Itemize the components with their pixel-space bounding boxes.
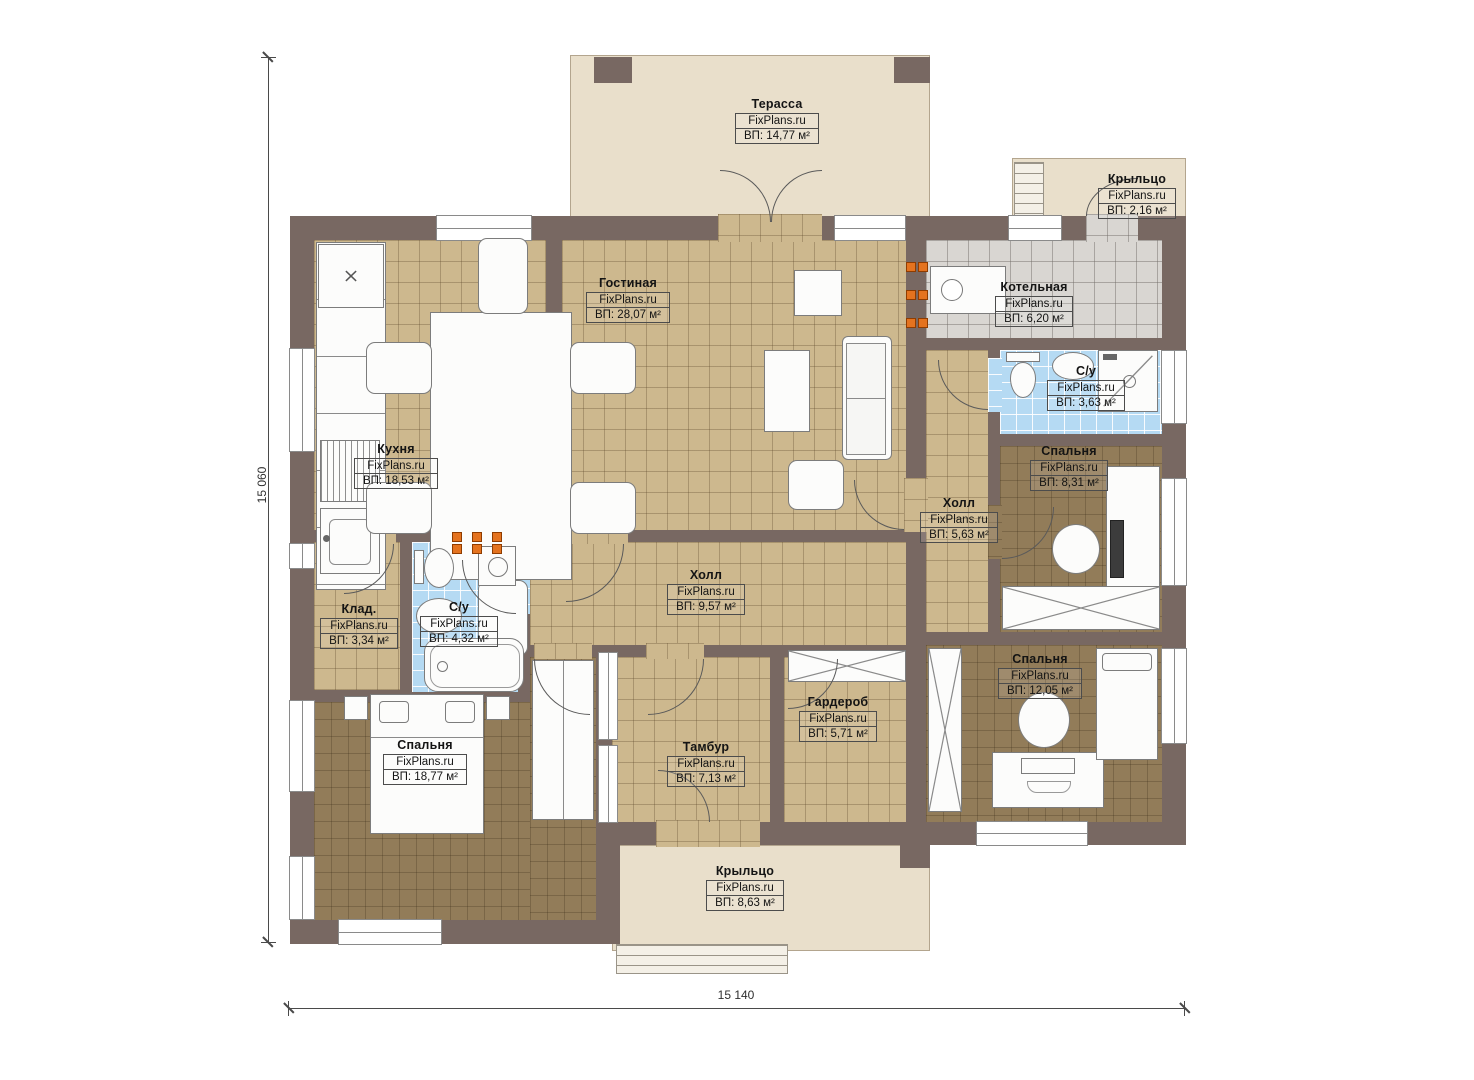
toilet-icon xyxy=(424,548,454,588)
room-brand: FixPlans.ru xyxy=(999,669,1081,684)
room-area: ВП: 9,57 м² xyxy=(668,600,744,614)
room-info-box: FixPlans.ru ВП: 6,20 м² xyxy=(995,296,1073,327)
bed xyxy=(1096,648,1158,760)
room-name: Терасса xyxy=(712,97,842,111)
tv-stand xyxy=(794,270,842,316)
radiator-icon xyxy=(918,290,928,300)
room-area: ВП: 2,16 м² xyxy=(1099,204,1175,218)
room-brand: FixPlans.ru xyxy=(355,459,437,474)
armchair xyxy=(788,460,844,510)
room-area: ВП: 7,13 м² xyxy=(668,772,744,786)
room-area: ВП: 12,05 м² xyxy=(999,684,1081,698)
room-name: Холл xyxy=(894,496,1024,510)
room-info-box: FixPlans.ru ВП: 14,77 м² xyxy=(735,113,819,144)
toilet-tank-icon xyxy=(1006,352,1040,362)
room-label-bedroom-1877: Спальня FixPlans.ru ВП: 18,77 м² xyxy=(360,738,490,785)
room-area: ВП: 18,77 м² xyxy=(384,770,466,784)
chair xyxy=(478,238,528,314)
closet-door-strip xyxy=(598,652,618,740)
radiator-icon xyxy=(906,262,916,272)
room-info-box: FixPlans.ru ВП: 7,13 м² xyxy=(667,756,745,787)
room-brand: FixPlans.ru xyxy=(707,881,783,896)
room-label-terrace: Терасса FixPlans.ru ВП: 14,77 м² xyxy=(712,97,842,144)
wardrobe xyxy=(928,648,962,812)
room-area: ВП: 8,31 м² xyxy=(1031,476,1107,490)
room-info-box: FixPlans.ru ВП: 12,05 м² xyxy=(998,668,1082,699)
window xyxy=(834,215,906,241)
room-label-hall-main: Холл FixPlans.ru ВП: 9,57 м² xyxy=(641,568,771,615)
room-area: ВП: 6,20 м² xyxy=(996,312,1072,326)
sofa xyxy=(842,336,892,460)
room-brand: FixPlans.ru xyxy=(1048,381,1124,396)
window xyxy=(1161,478,1187,586)
room-info-box: FixPlans.ru ВП: 2,16 м² xyxy=(1098,188,1176,219)
room-brand: FixPlans.ru xyxy=(996,297,1072,312)
chair xyxy=(570,342,636,394)
room-info-box: FixPlans.ru ВП: 4,32 м² xyxy=(420,616,498,647)
room-label-living-room: Гостиная FixPlans.ru ВП: 28,07 м² xyxy=(563,276,693,323)
radiator-icon xyxy=(918,318,928,328)
radiator-icon xyxy=(452,544,462,554)
room-brand: FixPlans.ru xyxy=(321,619,397,634)
window xyxy=(289,856,315,920)
hall-vestibule-opening xyxy=(646,643,704,659)
room-area: ВП: 14,77 м² xyxy=(736,129,818,143)
room-name: Гостиная xyxy=(563,276,693,290)
room-name: Кухня xyxy=(331,442,461,456)
wardrobe xyxy=(1002,586,1160,630)
room-name: С/у xyxy=(394,600,524,614)
window xyxy=(1008,215,1062,241)
room-name: Спальня xyxy=(1004,444,1134,458)
room-info-box: FixPlans.ru ВП: 3,63 м² xyxy=(1047,380,1125,411)
room-label-boiler-room: Котельная FixPlans.ru ВП: 6,20 м² xyxy=(969,280,1099,327)
room-name: Холл xyxy=(641,568,771,582)
room-info-box: FixPlans.ru ВП: 3,34 м² xyxy=(320,618,398,649)
office-chair xyxy=(1018,692,1070,748)
front-door-opening xyxy=(656,820,760,847)
radiator-icon xyxy=(906,290,916,300)
room-brand: FixPlans.ru xyxy=(384,755,466,770)
radiator-icon xyxy=(906,318,916,328)
room-brand: FixPlans.ru xyxy=(668,585,744,600)
fridge-icon xyxy=(318,244,384,308)
room-area: ВП: 3,63 м² xyxy=(1048,396,1124,410)
dimension-width-label: 15 140 xyxy=(706,988,766,1002)
room-info-box: FixPlans.ru ВП: 18,77 м² xyxy=(383,754,467,785)
room-brand: FixPlans.ru xyxy=(800,712,876,727)
radiator-icon xyxy=(452,532,462,542)
toilet-tank-icon xyxy=(414,550,424,584)
room-brand: FixPlans.ru xyxy=(1031,461,1107,476)
room-area: ВП: 5,63 м² xyxy=(921,528,997,542)
room-label-kitchen: Кухня FixPlans.ru ВП: 18,53 м² xyxy=(331,442,461,489)
room-area: ВП: 8,63 м² xyxy=(707,896,783,910)
closet-door-strip xyxy=(598,745,618,823)
room-label-bathroom-right: С/у FixPlans.ru ВП: 3,63 м² xyxy=(1021,364,1151,411)
room-info-box: FixPlans.ru ВП: 18,53 м² xyxy=(354,458,438,489)
room-area: ВП: 4,32 м² xyxy=(421,632,497,646)
chair xyxy=(570,482,636,534)
room-name: Гардероб xyxy=(773,695,903,709)
room-brand: FixPlans.ru xyxy=(421,617,497,632)
room-name: С/у xyxy=(1021,364,1151,378)
room-info-box: FixPlans.ru ВП: 28,07 м² xyxy=(586,292,670,323)
window xyxy=(1161,648,1187,744)
hall-bath-opening xyxy=(988,358,1002,412)
nightstand xyxy=(486,696,510,720)
hall-bedroom-opening xyxy=(534,643,592,659)
room-info-box: FixPlans.ru ВП: 8,63 м² xyxy=(706,880,784,911)
room-brand: FixPlans.ru xyxy=(736,114,818,129)
radiator-icon xyxy=(492,544,502,554)
office-chair xyxy=(1052,524,1100,574)
room-label-wardrobe-room: Гардероб FixPlans.ru ВП: 5,71 м² xyxy=(773,695,903,742)
room-label-bathroom-left: С/у FixPlans.ru ВП: 4,32 м² xyxy=(394,600,524,647)
room-brand: FixPlans.ru xyxy=(1099,189,1175,204)
radiator-icon xyxy=(472,544,482,554)
room-name: Спальня xyxy=(360,738,490,752)
room-label-vestibule: Тамбур FixPlans.ru ВП: 7,13 м² xyxy=(641,740,771,787)
terrace-post xyxy=(894,57,930,83)
room-name: Котельная xyxy=(969,280,1099,294)
room-area: ВП: 18,53 м² xyxy=(355,474,437,488)
terrace-post xyxy=(594,57,632,83)
radiator-icon xyxy=(492,532,502,542)
coffee-table xyxy=(764,350,810,432)
chair xyxy=(366,342,432,394)
window xyxy=(1161,350,1187,424)
room-area: ВП: 3,34 м² xyxy=(321,634,397,648)
room-name: Крыльцо xyxy=(680,864,810,878)
room-name: Спальня xyxy=(975,652,1105,666)
window xyxy=(289,348,315,452)
desk xyxy=(992,752,1104,808)
room-brand: FixPlans.ru xyxy=(587,293,669,308)
room-label-bedroom-1205: Спальня FixPlans.ru ВП: 12,05 м² xyxy=(975,652,1105,699)
room-info-box: FixPlans.ru ВП: 8,31 м² xyxy=(1030,460,1108,491)
room-info-box: FixPlans.ru ВП: 9,57 м² xyxy=(667,584,745,615)
radiator-icon xyxy=(472,532,482,542)
window xyxy=(976,821,1088,846)
room-area: ВП: 28,07 м² xyxy=(587,308,669,322)
window xyxy=(289,700,315,792)
chair xyxy=(366,482,432,534)
dimension-line-horizontal xyxy=(288,1008,1185,1009)
room-brand: FixPlans.ru xyxy=(668,757,744,772)
porch-bottom-steps xyxy=(616,944,788,974)
nightstand xyxy=(344,696,368,720)
room-brand: FixPlans.ru xyxy=(921,513,997,528)
room-label-bedroom-831: Спальня FixPlans.ru ВП: 8,31 м² xyxy=(1004,444,1134,491)
room-label-porch-top: Крыльцо FixPlans.ru ВП: 2,16 м² xyxy=(1072,172,1202,219)
room-info-box: FixPlans.ru ВП: 5,63 м² xyxy=(920,512,998,543)
room-name: Тамбур xyxy=(641,740,771,754)
window xyxy=(289,543,315,569)
room-area: ВП: 5,71 м² xyxy=(800,727,876,741)
room-label-hall-small: Холл FixPlans.ru ВП: 5,63 м² xyxy=(894,496,1024,543)
window xyxy=(338,919,442,945)
computer-monitor-icon xyxy=(1110,520,1124,578)
room-name: Крыльцо xyxy=(1072,172,1202,186)
floor-plan-canvas: Терасса FixPlans.ru ВП: 14,77 м² Крыльцо… xyxy=(0,0,1474,1080)
dimension-height-label: 15 060 xyxy=(255,455,269,515)
room-info-box: FixPlans.ru ВП: 5,71 м² xyxy=(799,711,877,742)
radiator-icon xyxy=(918,262,928,272)
room-label-porch-bottom: Крыльцо FixPlans.ru ВП: 8,63 м² xyxy=(680,864,810,911)
